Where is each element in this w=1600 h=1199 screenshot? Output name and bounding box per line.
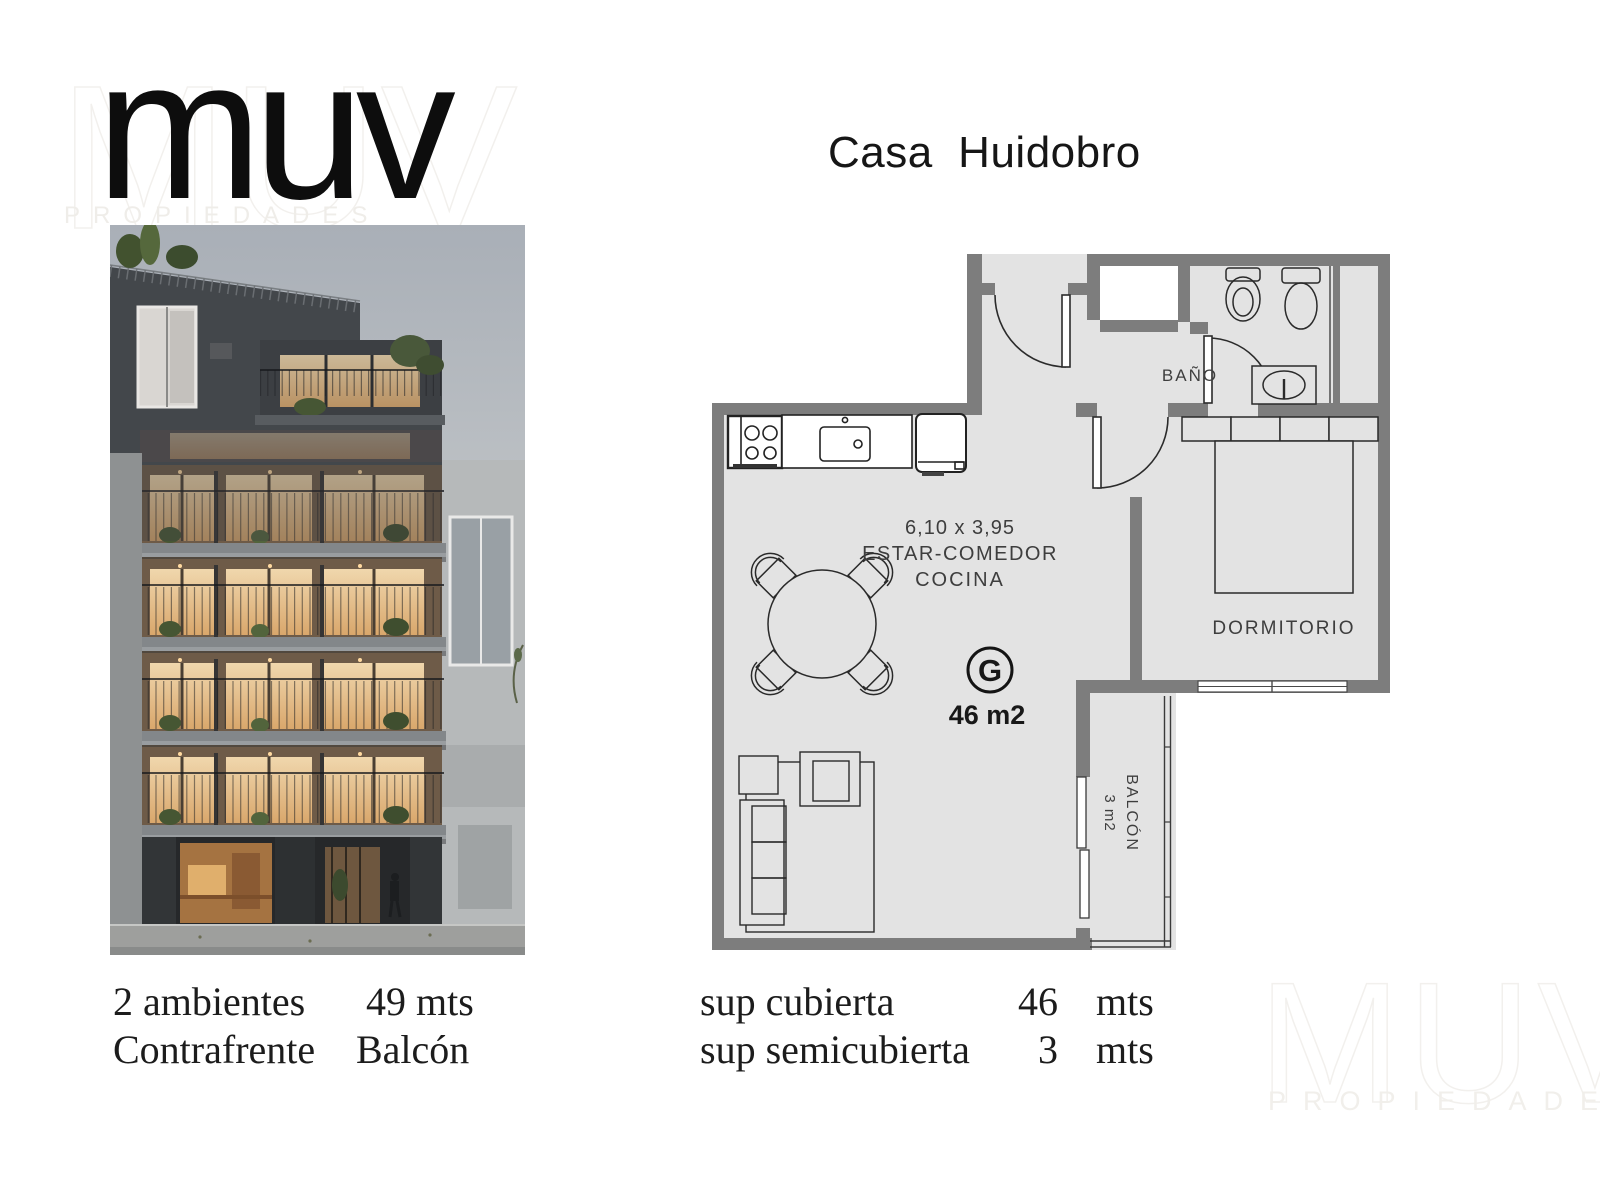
rooms-label: 2 ambientes [113,982,305,1022]
balcony-area-label: 3 m2 [1101,794,1118,831]
covered-area-label: sup cubierta [700,982,894,1022]
dimension-label: 6,10 x 3,95 [905,517,1015,539]
photo-neighbor-left [110,453,142,931]
covered-area-unit: mts [1096,982,1154,1022]
brand-logo: muv [96,30,447,230]
photo-floor-3 [136,653,446,750]
entry-door-leaf [1062,295,1070,367]
kitchen-fixtures [728,414,966,476]
bedroom-window [1198,681,1347,692]
side-table [739,756,778,794]
photo-ground-floor [140,837,442,930]
armchair [800,752,860,806]
building-photo [110,225,525,955]
bedroom-door-leaf [1093,417,1101,488]
rooms-value: 49 mts [366,982,474,1022]
slider-panel [1080,850,1089,918]
stove [728,416,782,468]
orientation-label: Contrafrente [113,1030,315,1070]
photo-sidewalk [110,925,525,955]
dining-table [768,570,876,678]
floor-plan: 6,10 x 3,95 ESTAR-COMEDOR COCINA G 46 m2… [700,248,1390,950]
fridge [916,414,966,472]
photo-neighbor-right [442,460,525,955]
kitchen-label: COCINA [915,569,1005,591]
semicovered-area-label: sup semicubierta [700,1030,970,1070]
slider-panel [1077,777,1086,848]
unit-letter: G [978,653,1002,688]
bed [1215,441,1353,593]
watermark-bottom-right-subtext: PROPIEDADES [1268,1086,1600,1117]
headboard [1182,417,1231,441]
bathroom-label: BAÑO [1162,366,1218,385]
unit-area-label: 46 m2 [949,700,1026,730]
bedroom-label: DORMITORIO [1212,618,1355,639]
covered-area-value: 46 [990,982,1058,1022]
semicovered-area-unit: mts [1096,1030,1154,1070]
balcony-label: BALCÓN [1123,774,1142,852]
photo-floor-4 [136,559,446,656]
living-room-label: ESTAR-COMEDOR [862,543,1058,565]
semicovered-area-value: 3 [990,1030,1058,1070]
toilet [1282,268,1320,283]
page-title: Casa Huidobro [828,128,1141,178]
orientation-value: Balcón [356,1030,469,1070]
photo-floor-2 [136,747,446,844]
bidet [1226,268,1260,281]
sofa [740,800,784,925]
kitchen-counter [782,415,912,468]
